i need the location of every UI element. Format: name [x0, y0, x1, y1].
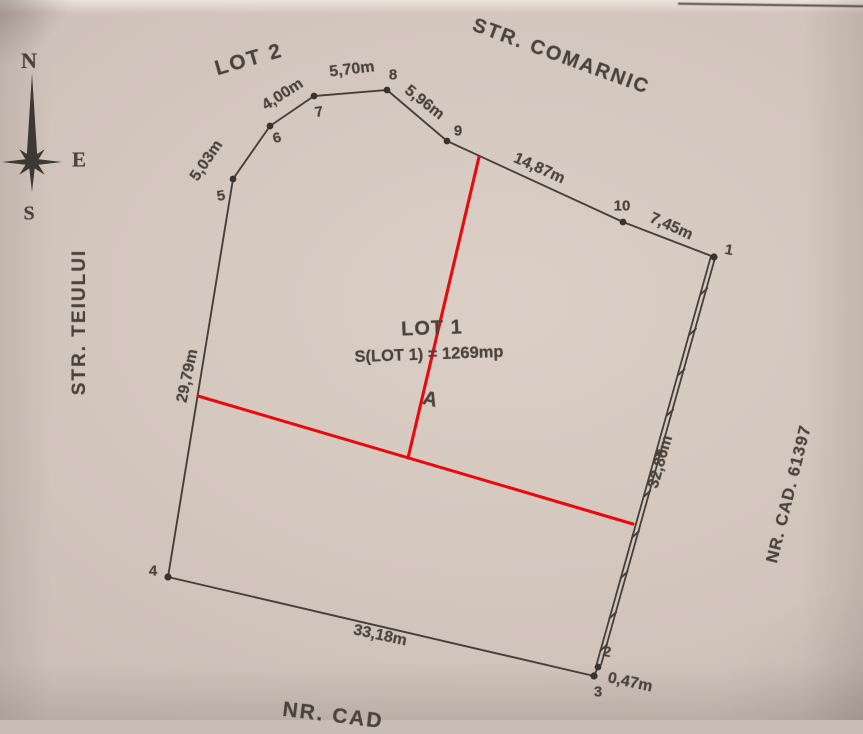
- red-divider-vertical: [408, 157, 479, 458]
- label-street-teiului: STR. TEIULUI: [69, 249, 91, 395]
- red-divider-horizontal: [198, 396, 633, 524]
- vertex-label-9: 9: [454, 123, 462, 140]
- vertex-label-8: 8: [389, 67, 397, 84]
- parcel-boundary-lines: [168, 90, 714, 676]
- compass-star: [2, 132, 62, 192]
- vertex-label-3: 3: [594, 684, 602, 701]
- vertex-dots: [164, 87, 717, 680]
- compass-north-label: N: [21, 48, 37, 74]
- compass-rose-icon: [2, 73, 62, 192]
- compass-south-label: S: [23, 203, 34, 226]
- label-lot1-title: LOT 1: [401, 316, 463, 341]
- photographed-cadastral-plan: { "compass": { "north": "N", "east": "E"…: [0, 0, 863, 720]
- compass-east-label: E: [72, 148, 86, 173]
- vertex-label-10: 10: [614, 198, 631, 215]
- vertex-label-4: 4: [149, 563, 157, 580]
